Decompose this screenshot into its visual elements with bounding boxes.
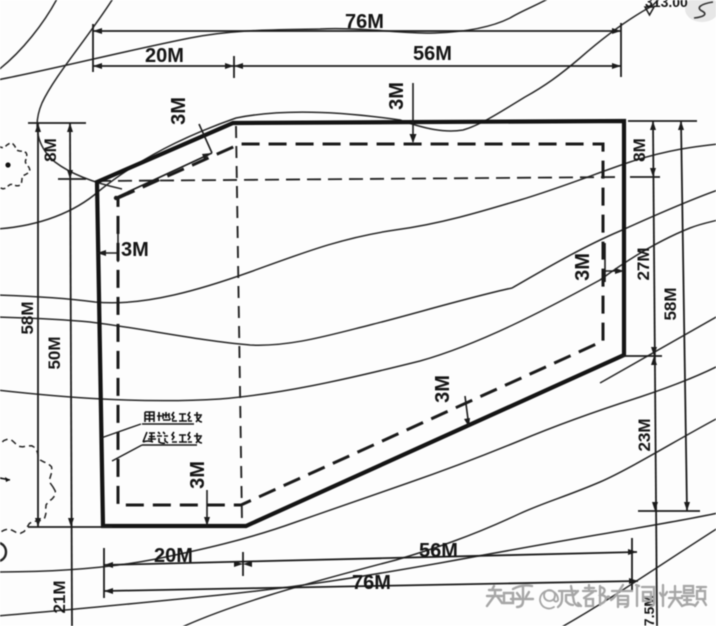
svg-text:58M: 58M: [18, 301, 37, 334]
svg-text:56M: 56M: [419, 540, 458, 562]
svg-text:58M: 58M: [661, 287, 680, 320]
svg-text:8M: 8M: [630, 138, 649, 162]
svg-text:23M: 23M: [635, 418, 654, 451]
svg-text:76M: 76M: [345, 11, 384, 33]
svg-text:20M: 20M: [154, 545, 193, 567]
svg-text:56M: 56M: [413, 43, 452, 65]
svg-text:3M: 3M: [187, 461, 209, 489]
svg-text:76M: 76M: [352, 572, 391, 594]
svg-text:20M: 20M: [145, 45, 184, 67]
svg-text:3M: 3M: [386, 82, 408, 110]
svg-text:3M: 3M: [572, 253, 594, 281]
svg-text:3M: 3M: [168, 97, 190, 125]
svg-text:27M: 27M: [634, 247, 653, 280]
svg-text:21M: 21M: [50, 580, 69, 613]
svg-text:3M: 3M: [121, 239, 149, 261]
svg-text:313.00: 313.00: [645, 0, 688, 10]
svg-text:8M: 8M: [41, 138, 60, 162]
svg-text:50M: 50M: [45, 336, 64, 369]
svg-text:3M: 3M: [432, 375, 454, 403]
